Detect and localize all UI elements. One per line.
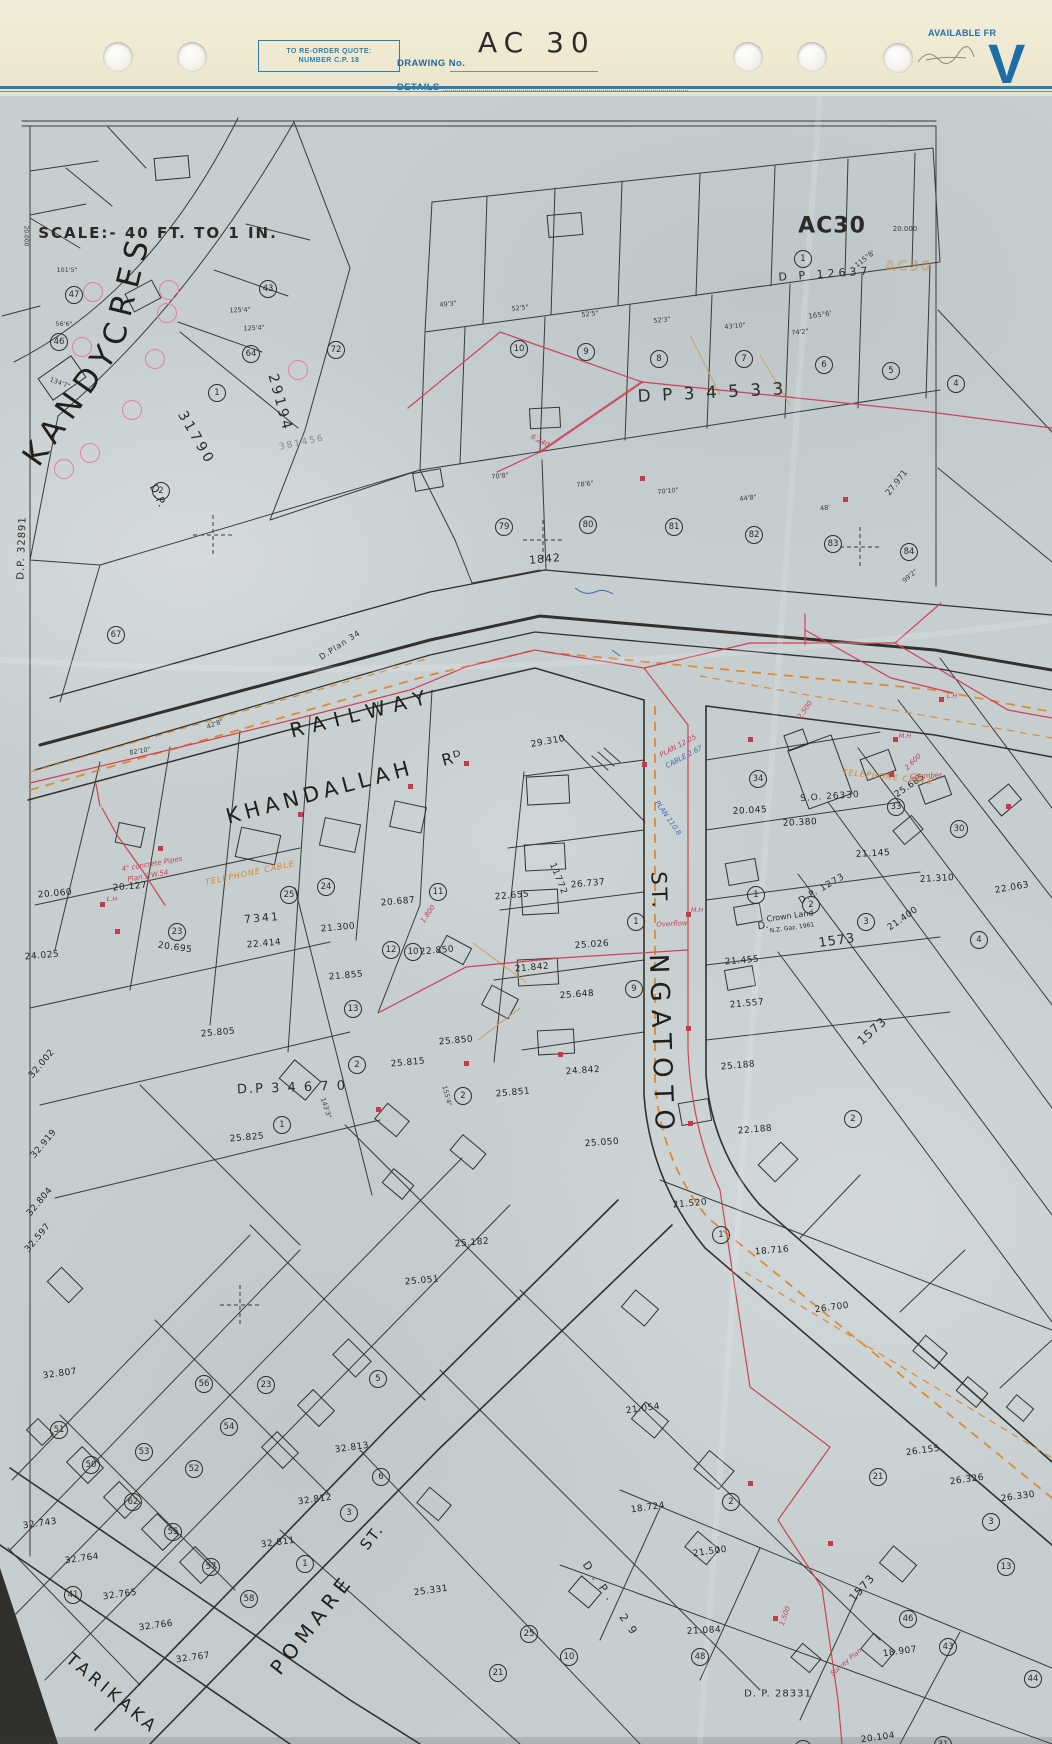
red-service-lines [30, 332, 1052, 1744]
road-edges [0, 570, 1052, 1744]
bottom-edge-shade [0, 1737, 1052, 1744]
building-outline [724, 966, 755, 991]
punch-hole [103, 42, 133, 72]
building-outline [758, 1142, 798, 1182]
drawing-no-label: DRAWING No. [397, 58, 465, 69]
scanned-survey-map-sheet: KANDYCRESRAILWAYKHANDALLAHRᴰNGATOTOST.PO… [0, 0, 1052, 1744]
building-outline [621, 1290, 658, 1326]
building-outline [537, 1029, 574, 1055]
building-outline [529, 407, 560, 429]
building-outline [547, 213, 583, 238]
drawing-no-underline [450, 71, 598, 72]
building-outline [262, 1432, 299, 1469]
building-outline [524, 843, 565, 871]
reorder-line2: NUMBER C.P. 18 [299, 56, 360, 65]
building-outline [1006, 1395, 1033, 1421]
punch-hole [177, 42, 207, 72]
building-outline [913, 1335, 947, 1368]
building-outline [918, 776, 951, 804]
building-outline [893, 815, 923, 844]
reorder-line1: TO RE-ORDER QUOTE: [286, 47, 371, 56]
building-outlines [27, 156, 1034, 1673]
signature-squiggle-icon [916, 44, 986, 72]
drawing-no-value: AC 30 [478, 26, 596, 59]
brand-v-logo: V [988, 36, 1025, 92]
building-outline [860, 750, 896, 781]
building-outline [413, 469, 444, 492]
building-outline [298, 1390, 335, 1427]
building-outline [526, 775, 569, 805]
available-from-label: AVAILABLE FR [928, 28, 996, 38]
survey-map: KANDYCRESRAILWAYKHANDALLAHRᴰNGATOTOST.PO… [0, 96, 1052, 1744]
header-rule-thin [0, 91, 1052, 92]
building-outline [725, 859, 758, 886]
building-outline [569, 1576, 602, 1608]
building-outline [38, 356, 86, 400]
building-outline [104, 1482, 141, 1519]
punch-hole [883, 43, 913, 73]
building-outline [694, 1451, 734, 1490]
building-outline [631, 1402, 668, 1438]
parcel-lines [2, 118, 1052, 1744]
building-outline [319, 818, 360, 853]
building-outline [180, 1547, 217, 1584]
pencil-guide-lines [473, 335, 790, 1040]
scan-corner-shadow [0, 1568, 58, 1744]
punch-hole [797, 42, 827, 72]
building-outline [235, 827, 280, 865]
binder-header: TO RE-ORDER QUOTE: NUMBER C.P. 18 DRAWIN… [0, 0, 1052, 96]
reorder-note: TO RE-ORDER QUOTE: NUMBER C.P. 18 [258, 40, 400, 72]
building-outline [47, 1267, 82, 1302]
paper-creases [0, 96, 1052, 1744]
map-linework [0, 96, 1052, 1744]
header-rule-thick [0, 86, 1052, 89]
building-outline [521, 889, 558, 915]
building-outline [438, 935, 471, 964]
building-outline [879, 1546, 916, 1582]
building-outline [154, 156, 190, 181]
building-outline [390, 801, 427, 833]
building-outline [142, 1514, 179, 1551]
building-outline [989, 784, 1022, 816]
building-outline [67, 1447, 104, 1484]
punch-hole [733, 42, 763, 72]
building-outline [279, 1060, 320, 1100]
building-outline [788, 735, 852, 809]
building-outline [333, 1339, 371, 1377]
building-outline [115, 823, 145, 848]
building-outline [125, 280, 161, 312]
building-outline [382, 1169, 413, 1200]
